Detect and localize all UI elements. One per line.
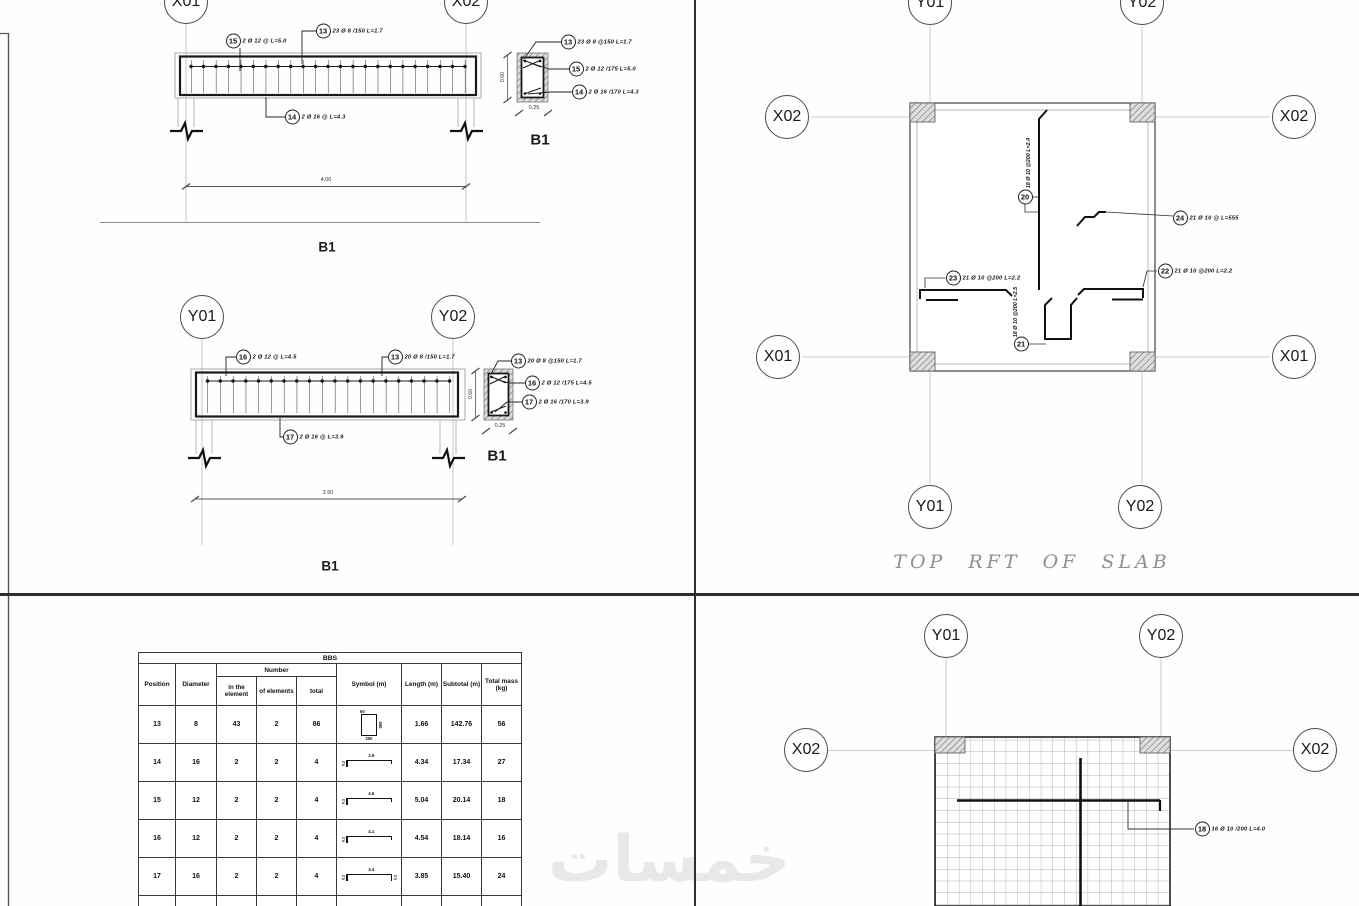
grid-bubble-slabbot-y02: Y02	[1139, 614, 1183, 658]
sheet-border	[0, 33, 9, 906]
grid-bubble-slabtop-x01-right: X01	[1272, 335, 1316, 379]
callout-beam1-sec-bottom-bars: 142 Ø 16 /170 L=4.3	[572, 85, 639, 100]
callout-slabbot-mesh: 1816 Ø 10 /200 L=4.0	[1195, 822, 1266, 837]
bar-symbol: 4.1 0.2	[346, 836, 392, 846]
grid-bubble-slabbot-x02-left: X02	[784, 728, 828, 772]
grid-bubble-slabtop-x02-right: X02	[1272, 95, 1316, 139]
callout-slabtop-vert-lower-text: 18 Ø 10 @200 L=2.5	[1013, 287, 1019, 337]
callout-beam1-bottom-bars: 142 Ø 16 @ L=4.3	[285, 110, 346, 125]
callout-beam1-top-bars: 152 Ø 12 @ L=5.0	[226, 34, 287, 49]
bbs-header-position: Position	[139, 664, 176, 706]
callout-beam2-bottom-bars: 172 Ø 16 @ L=3.9	[283, 430, 344, 445]
bbs-header-of-elements: of elements	[257, 677, 297, 706]
callout-beam2-stirrups: 1320 Ø 8 /150 L=1.7	[388, 350, 455, 365]
bbs-table: BBS Position Diameter Number Symbol (m) …	[138, 652, 522, 906]
callout-slabtop-vert-upper: 20	[1018, 190, 1033, 205]
grid-bubble-slabtop-x01-left: X01	[756, 335, 800, 379]
panel-divider-vertical	[694, 0, 696, 906]
bbs-row-17: 17 16 2 2 4 3.4 0.2 0.2 3.85 15.40 24	[139, 858, 522, 896]
beam1-sec-width-dim: 0.25	[529, 105, 540, 111]
bbs-row-13: 13 8 43 2 86 60 550 200 1.66 142.76 56	[139, 706, 522, 744]
bar-symbol: 4.6 0.2	[346, 798, 392, 808]
stirrup-symbol: 60 550 200	[361, 714, 377, 736]
bbs-header-symbol: Symbol (m)	[337, 664, 402, 706]
callout-slabtop-left: 2321 Ø 10 @200 L=2.2	[946, 271, 1021, 286]
grid-bubble-y01: Y01	[180, 295, 224, 339]
grid-bubble-slabbot-y01: Y01	[924, 614, 968, 658]
grid-bubble-slabbot-x02-right: X02	[1293, 728, 1337, 772]
slab-top-title: TOP RFT OF SLAB	[893, 551, 1170, 573]
callout-beam1-sec-stirrups: 1323 Ø 8 @150 L=1.7	[561, 35, 632, 50]
bbs-row-16: 16 12 2 2 4 4.1 0.2 4.54 18.14 16	[139, 820, 522, 858]
bbs-header-in-element: in the element	[217, 677, 257, 706]
bbs-title: BBS	[139, 653, 522, 664]
grid-bubble-slabtop-y01-bottom: Y01	[908, 485, 952, 529]
callout-beam2-sec-stirrups: 1320 Ø 8 @150 L=1.7	[511, 354, 582, 369]
bbs-header-subtotal: Subtotal (m)	[442, 664, 482, 706]
callout-beam2-top-bars: 162 Ø 12 @ L=4.5	[236, 350, 297, 365]
bbs-header-total: total	[297, 677, 337, 706]
bbs-row-14: 14 16 2 2 4 3.9 0.2 4.34 17.34 27	[139, 744, 522, 782]
drawing-sheet: خمسات X01 X02 Y01 Y02 Y01 Y02 X02 X02 X0…	[0, 0, 1359, 906]
beam2-section-label: B1	[487, 448, 506, 465]
bbs-header-diameter: Diameter	[176, 664, 217, 706]
slab-top-plan	[802, 26, 1270, 484]
watermark: خمسات	[548, 828, 791, 892]
grid-bubble-slabtop-x02-left: X02	[765, 95, 809, 139]
callout-slabtop-right: 2221 Ø 10 @200 L=2.2	[1158, 264, 1233, 279]
grid-bubble-y02: Y02	[431, 295, 475, 339]
bar-symbol: 3.9 0.2	[346, 760, 392, 770]
beam1-sec-height-dim: 0.60	[500, 72, 506, 82]
beam2-sec-height-dim: 0.60	[468, 389, 474, 399]
beam2-label: B1	[321, 559, 338, 574]
beam1-label: B1	[318, 240, 335, 255]
beam1-section-label: B1	[530, 132, 549, 149]
grid-bubble-slabtop-y02-bottom: Y02	[1118, 485, 1162, 529]
callout-slabtop-vert-lower: 21	[1014, 337, 1029, 352]
beam2-span-dim: 3.50	[323, 490, 334, 496]
slab-bottom-plan	[828, 658, 1293, 906]
callout-beam1-sec-top-bars: 152 Ø 12 /175 L=5.0	[569, 62, 636, 77]
beam2-sec-width-dim: 0.25	[495, 423, 506, 429]
panel-divider-horizontal	[0, 593, 1359, 596]
bbs-header-number: Number	[217, 664, 337, 677]
callout-slabtop-vert-upper-text: 18 Ø 10 @200 L=2.4	[1026, 138, 1032, 188]
bbs-header-length: Length (m)	[402, 664, 442, 706]
callout-beam2-sec-top-bars: 162 Ø 12 /175 L=4.5	[525, 376, 592, 391]
callout-slabtop-right-upper: 2421 Ø 10 @ L=555	[1173, 211, 1239, 226]
bbs-row-15: 15 12 2 2 4 4.6 0.2 5.04 20.14 18	[139, 782, 522, 820]
bar-symbol: 3.4 0.2 0.2	[346, 874, 392, 884]
callout-beam1-stirrups: 1323 Ø 8 /150 L=1.7	[316, 24, 383, 39]
callout-beam2-sec-bottom-bars: 172 Ø 16 /170 L=3.9	[522, 395, 589, 410]
bbs-header-total-mass: Total mass (kg)	[482, 664, 522, 706]
beam1-span-dim: 4.00	[321, 177, 332, 183]
bbs-row-18-partial: 18 10 16 1 16 4.0 0.2 4.08 65.28 40	[139, 896, 522, 906]
